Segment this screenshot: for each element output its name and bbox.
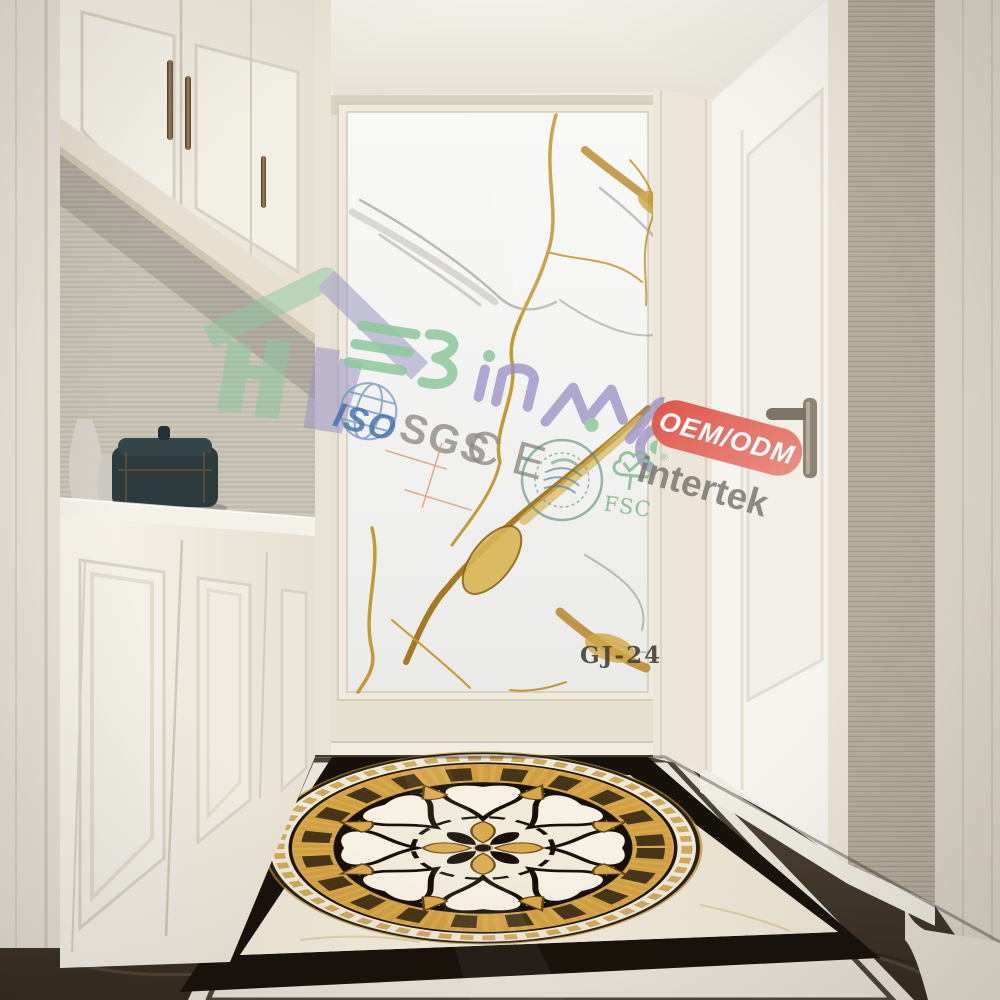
interior-scene bbox=[0, 0, 1000, 1000]
cabinet-handle bbox=[261, 156, 266, 208]
cabinet-handle bbox=[167, 60, 173, 140]
marble-wall-panel bbox=[347, 112, 701, 692]
wall-filler-left bbox=[315, 0, 331, 760]
right-pilaster bbox=[935, 0, 1000, 1000]
door-molding-strip bbox=[828, 0, 848, 868]
left-wall bbox=[0, 0, 60, 948]
door-casing bbox=[653, 88, 714, 772]
cabinet-door-panel bbox=[282, 590, 306, 790]
product-code: GJ-24 bbox=[580, 642, 662, 669]
cabinet-door-panel bbox=[198, 578, 250, 842]
door-panel bbox=[748, 90, 822, 700]
showroom-photo: ISO SGS CE ® FSC intertek OEM/ODM GJ-24 bbox=[0, 0, 1000, 1000]
cabinet-handle bbox=[185, 76, 191, 150]
